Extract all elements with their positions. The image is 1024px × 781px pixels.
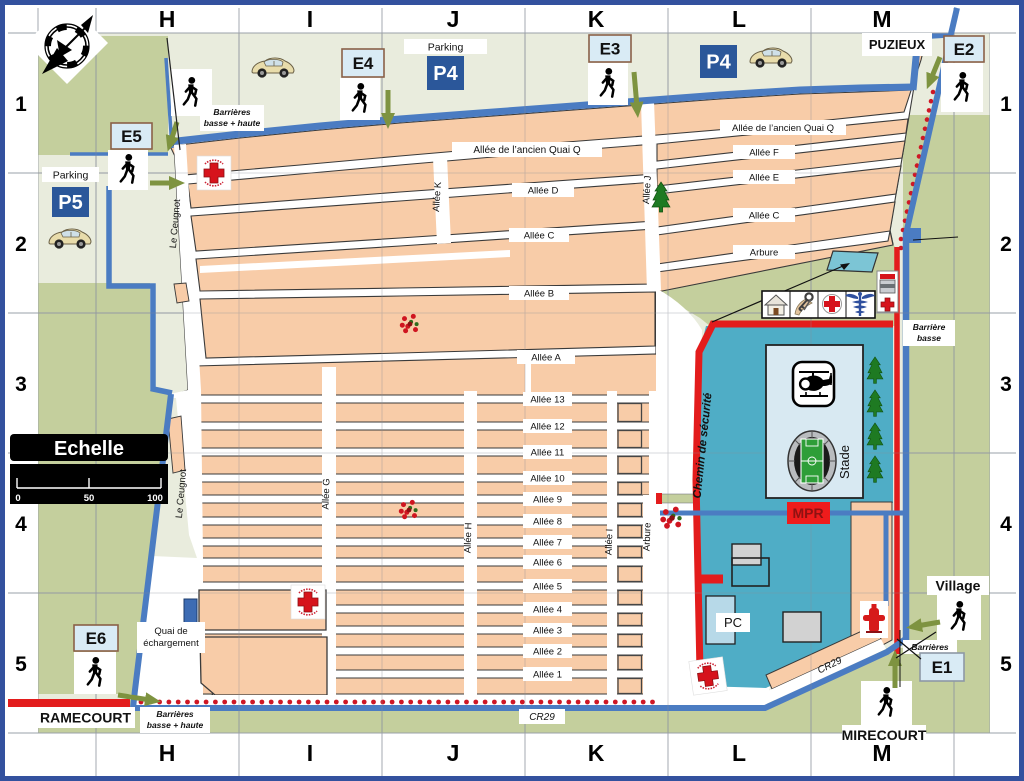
svg-text:Allée 12: Allée 12: [530, 421, 564, 432]
svg-text:Village: Village: [936, 578, 981, 594]
svg-text:J: J: [447, 740, 460, 766]
svg-text:1: 1: [1000, 93, 1012, 116]
svg-text:P4: P4: [706, 52, 731, 74]
svg-text:50: 50: [84, 493, 95, 504]
svg-text:Stade: Stade: [837, 445, 852, 479]
svg-text:basse + haute: basse + haute: [147, 720, 204, 730]
svg-text:H: H: [159, 740, 176, 766]
svg-text:M: M: [872, 6, 891, 32]
svg-text:3: 3: [15, 373, 27, 396]
svg-text:MPR: MPR: [792, 505, 823, 521]
svg-text:Allée 3: Allée 3: [533, 625, 562, 636]
svg-text:Allée C: Allée C: [524, 230, 555, 241]
svg-text:2: 2: [1000, 233, 1012, 256]
svg-text:Allée 6: Allée 6: [533, 557, 562, 568]
svg-text:K: K: [588, 6, 605, 32]
svg-text:Allée D: Allée D: [528, 185, 559, 196]
svg-text:Allée E: Allée E: [749, 172, 779, 183]
svg-text:échargement: échargement: [143, 638, 199, 649]
svg-text:Allée 2: Allée 2: [533, 646, 562, 657]
svg-text:Barrières: Barrières: [213, 107, 251, 117]
svg-text:2: 2: [15, 233, 27, 256]
svg-text:E1: E1: [932, 658, 953, 677]
svg-text:P4: P4: [433, 63, 458, 85]
svg-text:5: 5: [1000, 653, 1012, 676]
svg-text:Barrières: Barrières: [156, 709, 194, 719]
svg-text:L: L: [732, 740, 746, 766]
svg-text:RAMECOURT: RAMECOURT: [40, 710, 131, 726]
svg-text:Parking: Parking: [428, 41, 464, 53]
svg-text:Barrières: Barrières: [911, 642, 949, 652]
svg-text:E6: E6: [86, 629, 107, 648]
svg-text:1: 1: [15, 93, 27, 116]
svg-text:0: 0: [15, 493, 20, 504]
svg-text:PC: PC: [724, 615, 742, 630]
svg-text:E3: E3: [600, 40, 621, 59]
svg-text:E4: E4: [353, 54, 374, 73]
svg-text:4: 4: [1000, 513, 1012, 536]
svg-text:Allée K: Allée K: [431, 181, 444, 212]
svg-text:Arbure: Arbure: [642, 522, 654, 551]
svg-text:Allée 9: Allée 9: [533, 494, 562, 505]
svg-text:Allée B: Allée B: [524, 288, 554, 299]
svg-text:basse + haute: basse + haute: [204, 118, 261, 128]
svg-text:Allée F: Allée F: [749, 147, 779, 158]
svg-text:Parking: Parking: [53, 169, 89, 181]
svg-text:J: J: [447, 6, 460, 32]
svg-text:100: 100: [147, 493, 163, 504]
svg-text:Allée de l’ancien Quai Q: Allée de l’ancien Quai Q: [732, 123, 834, 134]
svg-text:Allée 7: Allée 7: [533, 537, 562, 548]
svg-text:Allée de l’ancien Quai Q: Allée de l’ancien Quai Q: [473, 145, 581, 156]
svg-text:PUZIEUX: PUZIEUX: [869, 37, 926, 52]
svg-text:Allée 5: Allée 5: [533, 581, 562, 592]
svg-text:Allée 1: Allée 1: [533, 669, 562, 680]
svg-text:CR29: CR29: [529, 712, 555, 723]
svg-text:basse: basse: [917, 333, 941, 343]
svg-text:Allée G: Allée G: [320, 478, 332, 510]
svg-text:Allée A: Allée A: [531, 352, 561, 363]
svg-text:P5: P5: [58, 192, 82, 214]
svg-text:Quai de: Quai de: [154, 626, 187, 637]
svg-text:Arbure: Arbure: [750, 247, 779, 258]
svg-text:Allée 11: Allée 11: [531, 447, 565, 458]
svg-text:H: H: [159, 6, 176, 32]
svg-text:Allée 13: Allée 13: [530, 394, 564, 405]
svg-text:L: L: [732, 6, 746, 32]
svg-text:Barrière: Barrière: [913, 322, 946, 332]
svg-text:Echelle: Echelle: [54, 438, 124, 460]
svg-text:Allée 8: Allée 8: [533, 516, 562, 527]
svg-text:E2: E2: [954, 40, 975, 59]
svg-text:MIRECOURT: MIRECOURT: [842, 727, 927, 743]
svg-text:Allée J: Allée J: [641, 175, 654, 204]
svg-text:I: I: [307, 6, 313, 32]
svg-text:3: 3: [1000, 373, 1012, 396]
svg-text:Allée 10: Allée 10: [530, 473, 564, 484]
svg-text:4: 4: [15, 513, 27, 536]
svg-text:Allée H: Allée H: [462, 522, 474, 553]
svg-text:Allée 4: Allée 4: [533, 604, 562, 615]
svg-text:Allée I: Allée I: [604, 529, 616, 556]
svg-text:K: K: [588, 740, 605, 766]
svg-text:5: 5: [15, 653, 27, 676]
svg-text:Allée C: Allée C: [749, 210, 780, 221]
svg-text:I: I: [307, 740, 313, 766]
svg-text:E5: E5: [121, 127, 142, 146]
